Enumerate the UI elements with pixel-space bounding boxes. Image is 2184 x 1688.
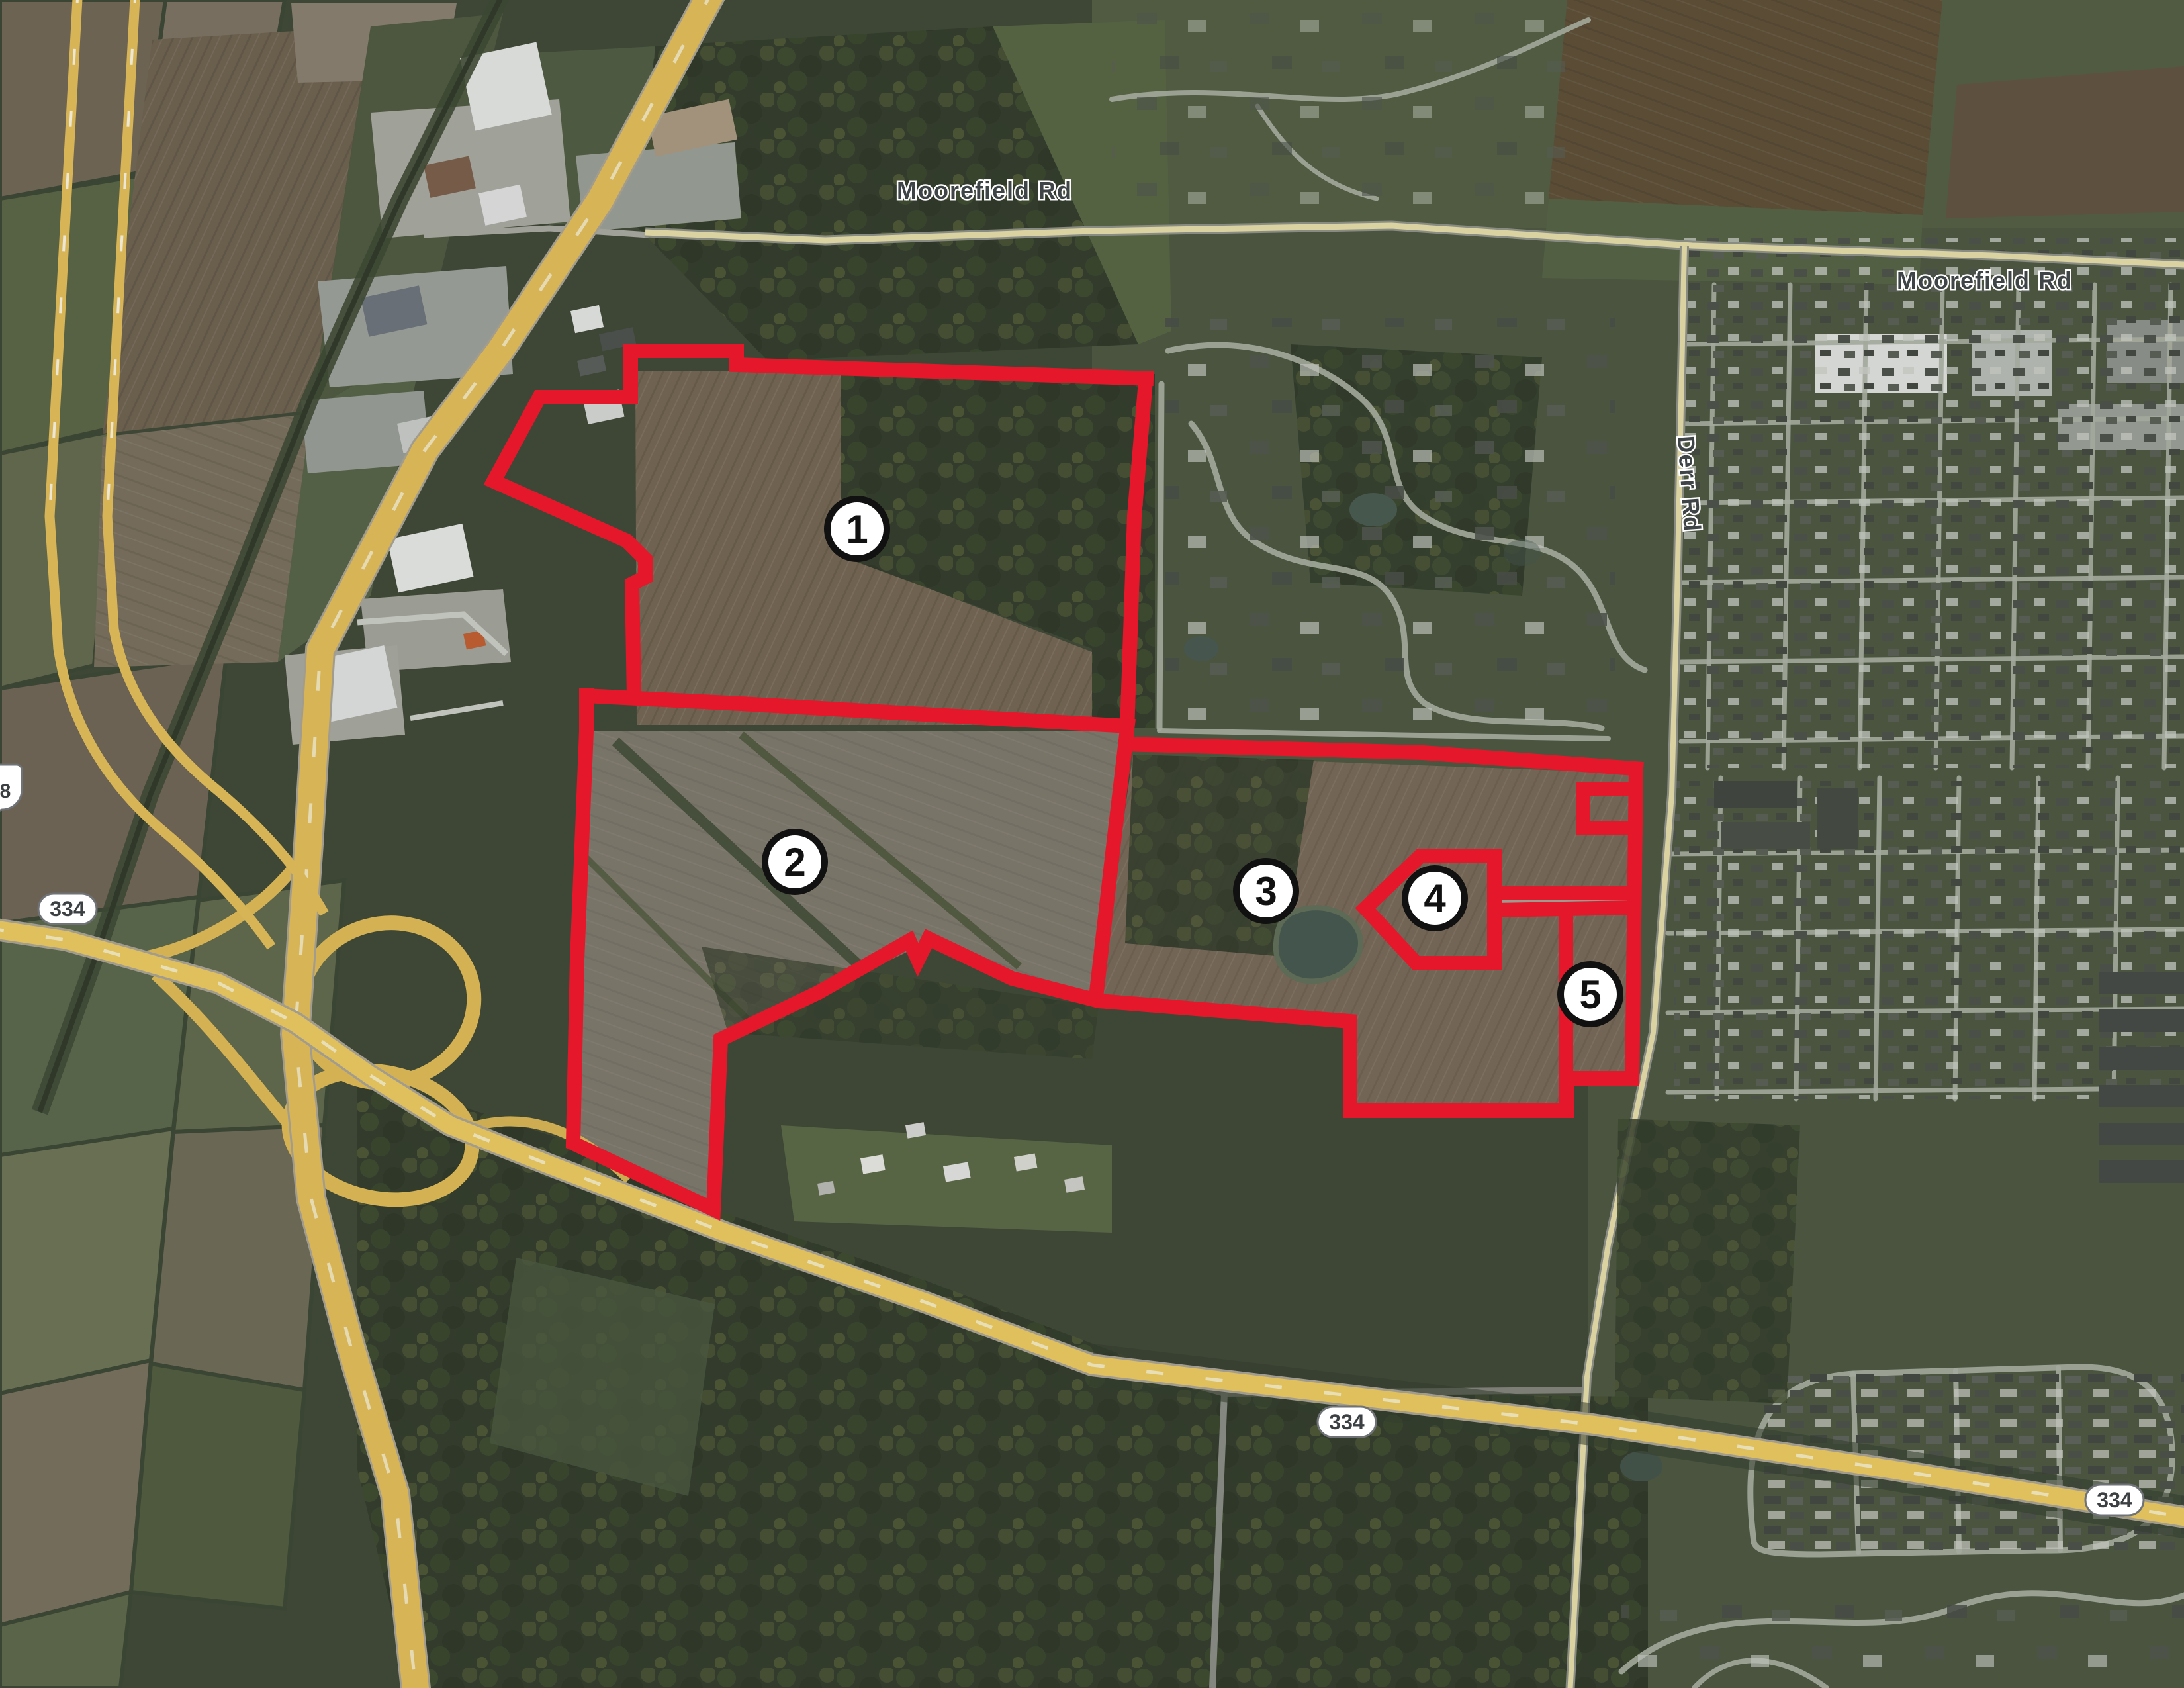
svg-text:334: 334: [2097, 1488, 2132, 1512]
svg-text:2: 2: [784, 840, 805, 884]
svg-text:Moorefield Rd: Moorefield Rd: [1897, 267, 2073, 294]
svg-text:1: 1: [846, 507, 868, 551]
svg-text:3: 3: [1255, 869, 1277, 914]
svg-text:334: 334: [1329, 1410, 1365, 1434]
svg-text:Moorefield Rd: Moorefield Rd: [897, 177, 1073, 204]
svg-text:4: 4: [1424, 876, 1446, 921]
svg-text:334: 334: [50, 897, 85, 921]
svg-text:5: 5: [1579, 972, 1601, 1017]
svg-text:8: 8: [0, 780, 11, 802]
